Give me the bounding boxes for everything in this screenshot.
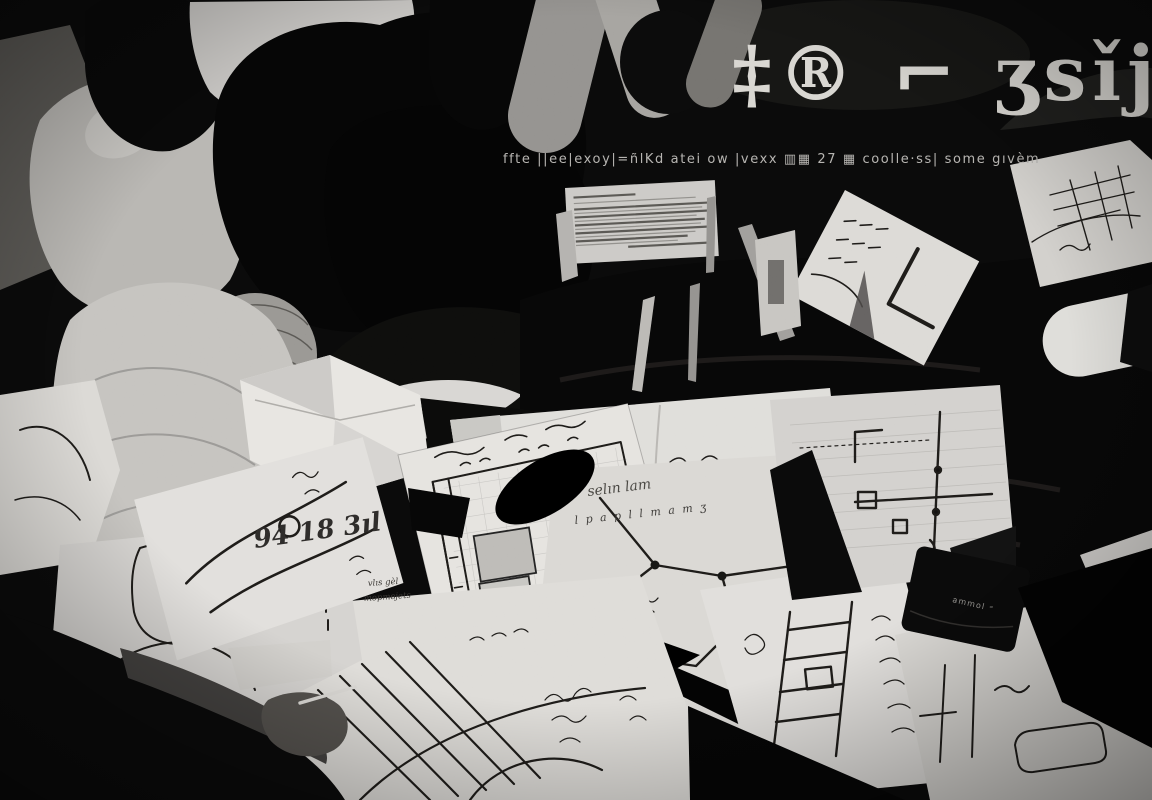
photo-canvas: ‡® ⌐ ʒsǐj ffte ||ee|exoy|=ñlKd atei ow |… xyxy=(0,0,1152,800)
photo-scene: ‡® ⌐ ʒsǐj ffte ||ee|exoy|=ñlKd atei ow |… xyxy=(0,0,1152,800)
vignette xyxy=(0,0,1152,800)
